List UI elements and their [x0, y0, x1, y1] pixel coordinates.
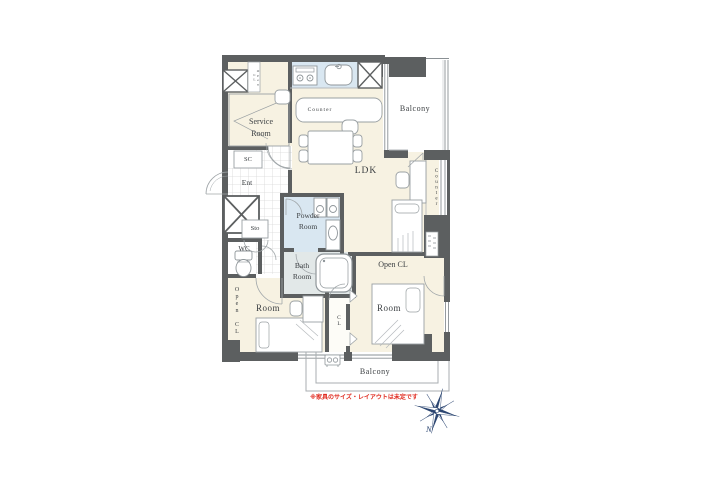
floor-plan-drawing [0, 0, 708, 500]
furniture-disclaimer-note: ※家具のサイズ・レイアウトは未定です [294, 392, 434, 401]
chair-icon [290, 301, 302, 316]
counter-island-label: Counter [297, 107, 343, 115]
service-room-label: Service Room [241, 116, 281, 139]
open-closet-right-label: Open CL [363, 259, 423, 271]
chair-icon [275, 90, 290, 104]
shoe-closet-label: SC [236, 155, 260, 164]
entrance-label: Ent [233, 178, 261, 189]
balcony-top-label: Balcony [386, 103, 444, 115]
stove-icon [293, 66, 317, 85]
counter-window-label: Counter [427, 163, 439, 213]
compass-north-label: N [426, 424, 432, 434]
bed-icon [256, 318, 322, 352]
open-closet-left-label: Open CL [228, 283, 240, 339]
balcony-bottom-label: Balcony [345, 366, 405, 378]
closet-label: CL [331, 311, 341, 331]
powder-room-label: Powder Room [287, 211, 329, 233]
pipe-shaft-x-icon [223, 70, 248, 92]
sink-icon [325, 64, 352, 85]
bed-icon [372, 284, 424, 348]
bed-icon [392, 200, 422, 252]
shelf-niche-icon [426, 232, 438, 256]
bath-room-label: Bath Room [285, 261, 319, 283]
bathtub-icon [316, 254, 352, 292]
room-left-label: Room [248, 302, 288, 315]
chair-icon [396, 172, 409, 188]
ldk-label: LDK [348, 165, 384, 179]
desk-icon [303, 296, 323, 322]
pipe-shaft-x-icon [358, 62, 382, 88]
ac-outdoor-unit-icon [325, 355, 340, 367]
open-closet-top-label: Open CL [249, 64, 259, 91]
storage-label: Sto [243, 224, 267, 233]
room-right-label: Room [369, 302, 409, 315]
desk-icon [410, 161, 426, 203]
toilet-icon [235, 251, 252, 277]
wc-label: WC [232, 244, 256, 254]
dining-table-icon [299, 131, 362, 164]
floor-plan-canvas: Service Room Open CL SC Ent Sto WC Open … [0, 0, 708, 500]
